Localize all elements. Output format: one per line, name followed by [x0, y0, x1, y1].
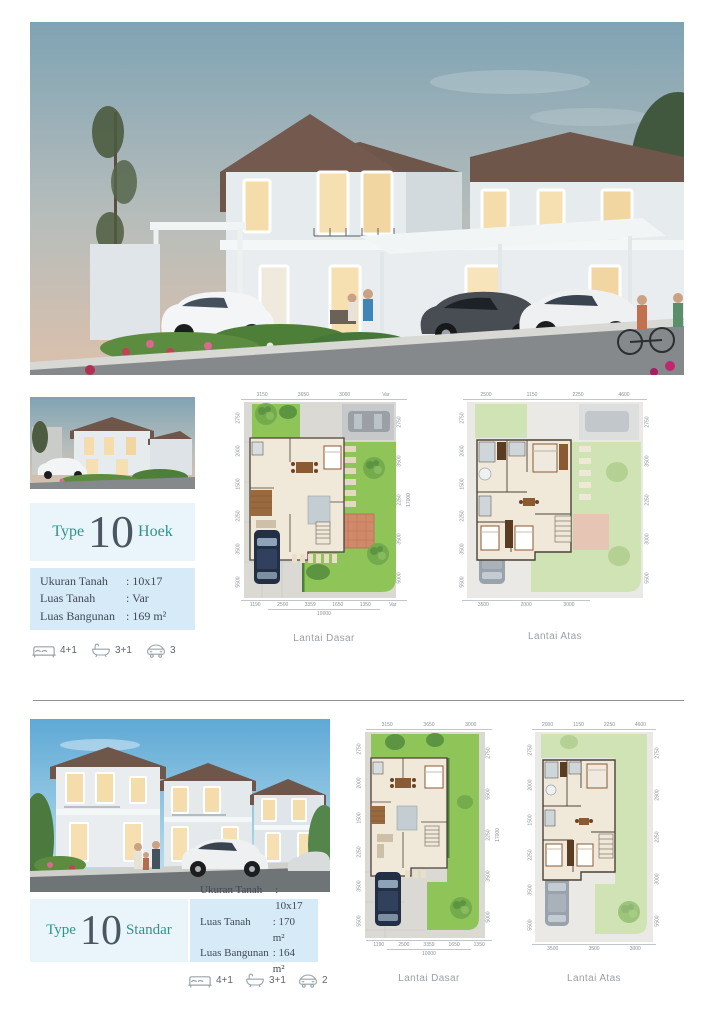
- floorplan-canvas-hoek-atas: [467, 402, 643, 598]
- standar-plan-atas: 2000 1150 2250 4600 2750 2000 1500 2250 …: [522, 722, 666, 984]
- dim: 3500: [532, 946, 573, 952]
- dim: 5500: [486, 788, 492, 799]
- dims-top: 3150 3650 3000 Var: [241, 392, 406, 400]
- standar-title-number: 10: [80, 910, 122, 952]
- dims-bottom: 1190 2500 3359 1650 1350 Var: [241, 600, 406, 608]
- bath-icon: [91, 642, 111, 658]
- dim: 2250: [594, 722, 625, 728]
- spec-label: Luas Tanah: [200, 915, 273, 947]
- spec-row-luas-tanah: Luas Tanah : 170 m²: [200, 915, 308, 947]
- dim: 2250: [655, 831, 661, 842]
- dim: 2750: [460, 413, 466, 424]
- dim: 1350: [467, 942, 492, 948]
- dim: 1650: [442, 942, 467, 948]
- dims-right-total: 17000: [494, 732, 503, 938]
- standar-plan-dasar: 3150 3650 3000 2750 2000 1500 2250 3500 …: [356, 722, 502, 984]
- dim: 1350: [352, 602, 380, 608]
- spec-label: Ukuran Tanah: [200, 883, 275, 915]
- dim: 2000: [357, 778, 363, 789]
- dims-right: 2750 3500 2250 3000 5500: [643, 402, 652, 598]
- hoek-title: Type 10 Hoek: [30, 503, 195, 561]
- bedroom-count: 4+1: [216, 975, 233, 986]
- dim-total: 10000: [317, 611, 331, 617]
- section-divider: [33, 700, 684, 701]
- floorplan-canvas-hoek-dasar: [244, 402, 396, 598]
- dims-left: 2750 2000 1500 2250 3500 5500: [235, 402, 244, 598]
- car-icon: [146, 642, 166, 658]
- spec-row-luas-tanah: Luas Tanah : Var: [40, 590, 185, 607]
- dim: 4600: [625, 722, 656, 728]
- dim: 3500: [460, 543, 466, 554]
- bed-icon: [188, 973, 212, 988]
- hoek-amenities: 4+1 3+1 3: [32, 642, 176, 658]
- dim: 3500: [528, 884, 534, 895]
- dim: 1190: [241, 602, 269, 608]
- standar-title-prefix: Type: [46, 922, 76, 939]
- dim: 1500: [357, 812, 363, 823]
- plan-label: Lantai Dasar: [398, 973, 460, 984]
- spec-label: Ukuran Tanah: [40, 573, 126, 590]
- spec-value: : 10x17: [275, 883, 308, 915]
- standar-amenities: 4+1 3+1 2: [188, 972, 328, 988]
- hero-render-canvas: [30, 22, 684, 375]
- spec-row-luas-bangunan: Luas Bangunan : 169 m²: [40, 608, 185, 625]
- dim-total: 17000: [406, 493, 412, 507]
- dim: 2750: [645, 416, 651, 427]
- dim: 3000: [324, 392, 365, 398]
- dim: 5500: [460, 576, 466, 587]
- garage-count: 2: [322, 975, 328, 986]
- hero-render: [30, 22, 684, 375]
- spec-value: : 170 m²: [273, 915, 308, 947]
- standar-photo-render: [30, 719, 330, 892]
- dim: 2250: [645, 494, 651, 505]
- dim: 3150: [241, 392, 282, 398]
- dim: 3500: [397, 455, 403, 466]
- dim: 1500: [528, 814, 534, 825]
- dim: 3500: [573, 946, 614, 952]
- dims-top: 2000 1150 2250 4600: [532, 722, 656, 730]
- dim: 3000: [615, 946, 656, 952]
- spec-label: Luas Bangunan: [40, 608, 126, 625]
- dim: 2250: [486, 829, 492, 840]
- bathroom-amenity: 3+1: [245, 972, 286, 988]
- dim: 1190: [366, 942, 391, 948]
- dims-left: 2750 2000 1500 2250 3500 5500: [458, 402, 467, 598]
- dim: 3500: [397, 534, 403, 545]
- spec-row-ukuran-tanah: Ukuran Tanah : 10x17: [200, 883, 308, 915]
- dim: 2750: [486, 747, 492, 758]
- plan-label: Lantai Atas: [528, 631, 582, 642]
- dims-right: 2750 3500 2250 3500 5000: [396, 402, 405, 598]
- bed-icon: [32, 643, 56, 658]
- dims-bottom-total: 10000: [387, 949, 472, 957]
- dim: 5500: [236, 576, 242, 587]
- spec-row-ukuran-tanah: Ukuran Tanah : 10x17: [40, 573, 185, 590]
- dim: 3150: [366, 722, 408, 728]
- standar-specs: Ukuran Tanah : 10x17 Luas Tanah : 170 m²…: [190, 899, 318, 962]
- bathroom-count: 3+1: [269, 975, 286, 986]
- hoek-plan-dasar: 3150 3650 3000 Var 2750 2000 1500 2250 3…: [228, 392, 420, 644]
- dim: 2250: [357, 847, 363, 858]
- dim: 3500: [236, 543, 242, 554]
- dim: 2750: [357, 744, 363, 755]
- bedroom-count: 4+1: [60, 645, 77, 656]
- dim: 2750: [528, 744, 534, 755]
- dim: 3359: [296, 602, 324, 608]
- dim: 2250: [460, 511, 466, 522]
- hoek-title-prefix: Type: [52, 523, 84, 541]
- hoek-thumbnail-canvas: [30, 397, 195, 489]
- hoek-specs: Ukuran Tanah : 10x17 Luas Tanah : Var Lu…: [30, 568, 195, 630]
- dim: 2250: [236, 511, 242, 522]
- dim: 2750: [655, 747, 661, 758]
- dim: 5500: [528, 919, 534, 930]
- dims-bottom-total: 10000: [268, 609, 379, 617]
- dim: 1150: [509, 392, 555, 398]
- hoek-thumbnail-render: [30, 397, 195, 489]
- garage-count: 3: [170, 645, 176, 656]
- dim: 3000: [450, 722, 492, 728]
- spec-value: : 10x17: [126, 573, 162, 590]
- dims-top: 2500 1150 2250 4600: [463, 392, 647, 400]
- dim: 3000: [548, 602, 591, 608]
- dim: 2900: [655, 789, 661, 800]
- dim: 2250: [555, 392, 601, 398]
- dims-right: 2750 5500 2250 3500 5000: [485, 732, 494, 938]
- garage-amenity: 2: [298, 972, 328, 988]
- dim: 2250: [528, 849, 534, 860]
- dim: 2750: [236, 413, 242, 424]
- dim: 2750: [397, 416, 403, 427]
- dim: 2000: [236, 445, 242, 456]
- dim: 3650: [283, 392, 324, 398]
- spec-value: : 169 m²: [126, 608, 166, 625]
- dim: 3500: [357, 881, 363, 892]
- dim: 3650: [408, 722, 450, 728]
- dim-total: 10000: [422, 951, 436, 957]
- dim: Var: [379, 602, 407, 608]
- garage-amenity: 3: [146, 642, 176, 658]
- dim: 4600: [601, 392, 647, 398]
- dims-bottom: 3500 2000 3000: [462, 600, 590, 608]
- standar-photo-canvas: [30, 719, 330, 892]
- dims-bottom: 3500 3500 3000: [532, 944, 656, 952]
- dim: 2000: [505, 602, 548, 608]
- spec-label: Luas Tanah: [40, 590, 126, 607]
- floorplan-canvas-standar-atas: [535, 732, 653, 942]
- dim: 3500: [462, 602, 505, 608]
- hoek-plan-atas: 2500 1150 2250 4600 2750 2000 1500 2250 …: [448, 392, 662, 642]
- dim: 5500: [357, 915, 363, 926]
- standar-title: Type 10 Standar: [30, 899, 188, 962]
- dim: 1500: [236, 478, 242, 489]
- hoek-title-suffix: Hoek: [138, 523, 173, 541]
- spec-value: : Var: [126, 590, 149, 607]
- dim: 2250: [397, 494, 403, 505]
- dims-left: 2750 2000 1500 2250 3500 5500: [526, 732, 535, 942]
- standar-title-suffix: Standar: [126, 922, 172, 939]
- dim: 2500: [463, 392, 509, 398]
- brochure-page: Type 10 Hoek Ukuran Tanah : 10x17 Luas T…: [0, 0, 714, 1024]
- dim: 3359: [416, 942, 441, 948]
- dims-bottom: 1190 2500 3359 1650 1350: [366, 940, 492, 948]
- dims-top: 3150 3650 3000: [366, 722, 492, 730]
- plan-label: Lantai Dasar: [293, 633, 355, 644]
- dim: 5500: [645, 573, 651, 584]
- dims-right-total: 17000: [405, 402, 414, 598]
- dim: 1650: [324, 602, 352, 608]
- bathroom-amenity: 3+1: [91, 642, 132, 658]
- dim: 5500: [655, 915, 661, 926]
- dim: 2000: [532, 722, 563, 728]
- dim-total: 17000: [495, 828, 501, 842]
- dim: 3000: [645, 534, 651, 545]
- dim: 1150: [563, 722, 594, 728]
- dims-right: 2750 2900 2250 3000 5500: [653, 732, 662, 942]
- dims-left: 2750 2000 1500 2250 3500 5500: [356, 732, 365, 938]
- floorplan-canvas-standar-dasar: [365, 732, 485, 938]
- dim: 3500: [486, 871, 492, 882]
- bedroom-amenity: 4+1: [188, 973, 233, 988]
- dim: 2500: [391, 942, 416, 948]
- dim: 5000: [486, 912, 492, 923]
- dim: 2500: [269, 602, 297, 608]
- dim: Var: [365, 392, 406, 398]
- dim: 3500: [645, 455, 651, 466]
- bath-icon: [245, 972, 265, 988]
- bedroom-amenity: 4+1: [32, 643, 77, 658]
- dim: 5000: [397, 573, 403, 584]
- bathroom-count: 3+1: [115, 645, 132, 656]
- dim: 3000: [655, 873, 661, 884]
- hoek-title-number: 10: [88, 509, 134, 555]
- dim: 2000: [460, 445, 466, 456]
- dim: 2000: [528, 779, 534, 790]
- dim: 1500: [460, 478, 466, 489]
- car-icon: [298, 972, 318, 988]
- plan-label: Lantai Atas: [567, 973, 621, 984]
